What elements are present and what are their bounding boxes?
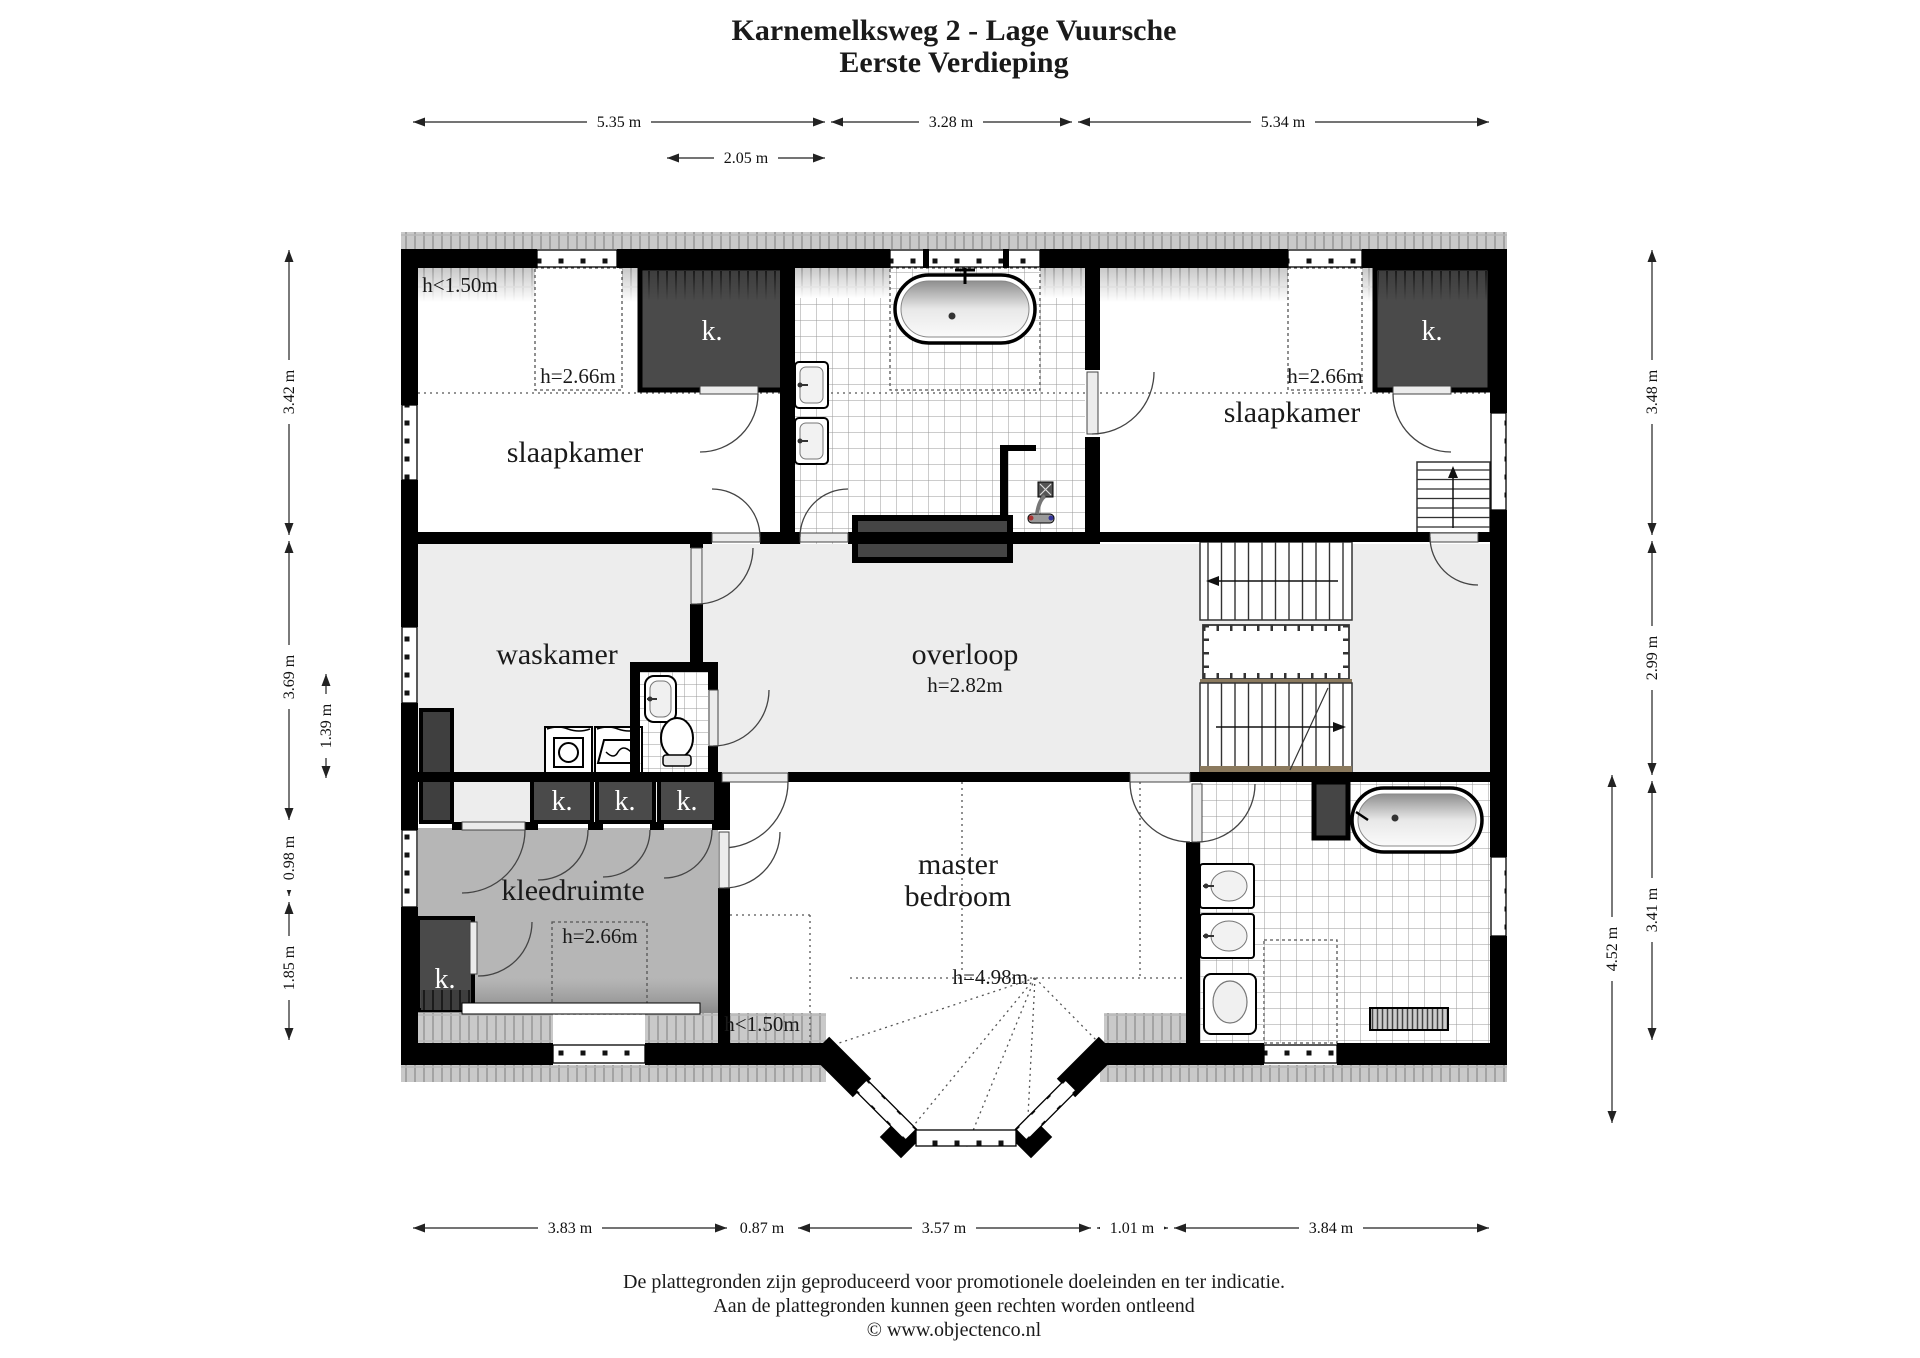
label-waskamer: waskamer (496, 638, 618, 671)
floor-plan-page: slaapkamer slaapkamer waskamer overloop … (0, 0, 1920, 1358)
label-master: master (918, 848, 998, 881)
door-leaf (1430, 533, 1478, 542)
svg-text:2.05 m: 2.05 m (724, 150, 769, 167)
label-closet: k. (615, 786, 636, 817)
label-closet: k. (1422, 316, 1443, 347)
room-overloop (703, 544, 1490, 772)
window (1264, 1045, 1337, 1063)
svg-text:1.39 m: 1.39 m (318, 703, 335, 748)
label-dormer-kleedruimte: h=2.66m (562, 924, 637, 948)
label-overloop: overloop (912, 638, 1019, 671)
dim-bottom-3: 3.57 m (798, 1219, 1091, 1237)
label-master-height: h=4.98m (953, 965, 1028, 989)
storage-block-waskamer (421, 710, 452, 822)
window-band-kleedruimte (462, 1003, 700, 1014)
toilet-sink-icon (645, 676, 676, 722)
dim-right-1: 3.48 m (1643, 250, 1661, 535)
roof-band-bottom-right (1100, 1065, 1507, 1082)
dim-top-inner: 2.05 m (667, 149, 825, 167)
dormer-gap-bottom (553, 1013, 645, 1043)
svg-text:2.99 m: 2.99 m (1644, 635, 1661, 680)
bathtub-icon (895, 268, 1035, 343)
label-closet: k. (677, 786, 698, 817)
window (1491, 413, 1506, 510)
svg-text:3.57 m: 3.57 m (922, 1220, 967, 1237)
label-slaapkamer-left: slaapkamer (507, 436, 644, 469)
roof-band-top (401, 232, 1507, 249)
dim-right-inner: 4.52 m (1603, 775, 1621, 1123)
door-leaf (719, 832, 729, 888)
stair-nosing (1200, 766, 1352, 772)
window (402, 405, 417, 480)
footer-disclaimer-line2: Aan de plattegronden kunnen geen rechten… (713, 1295, 1194, 1317)
svg-text:3.41 m: 3.41 m (1644, 887, 1661, 932)
floor-plan: slaapkamer slaapkamer waskamer overloop … (0, 0, 1920, 1358)
door-leaf (1192, 784, 1202, 842)
svg-text:3.84 m: 3.84 m (1309, 1220, 1354, 1237)
door-leaf (1393, 386, 1451, 394)
staircase-attic (1417, 462, 1490, 533)
svg-text:5.34 m: 5.34 m (1261, 114, 1306, 131)
label-closet: k. (552, 786, 573, 817)
ensuite-wc-icon (1204, 974, 1256, 1034)
footer-copyright: © www.objectenco.nl (867, 1319, 1042, 1341)
label-closet: k. (435, 964, 456, 995)
ensuite-sink-icon (1200, 914, 1254, 958)
svg-text:3.42 m: 3.42 m (281, 369, 298, 414)
svg-text:0.87 m: 0.87 m (740, 1220, 785, 1237)
window (553, 1045, 645, 1063)
door-leaf (800, 533, 848, 542)
dim-bottom-4: 1.01 m (1097, 1219, 1168, 1237)
label-dormer-left: h=2.66m (540, 364, 615, 388)
door-leaf (1130, 773, 1190, 782)
svg-text:1.01 m: 1.01 m (1110, 1220, 1155, 1237)
page-title-line1: Karnemelksweg 2 - Lage Vuursche (732, 14, 1177, 47)
bay-window (916, 1130, 1016, 1146)
wc-icon (661, 718, 693, 766)
window (537, 250, 617, 267)
svg-text:3.69 m: 3.69 m (281, 654, 298, 699)
svg-text:3.83 m: 3.83 m (548, 1220, 593, 1237)
svg-text:4.52 m: 4.52 m (1604, 926, 1621, 971)
door-leaf (691, 548, 702, 604)
label-slaapkamer-right: slaapkamer (1224, 396, 1361, 429)
sink-icon (795, 418, 828, 464)
stair-void-railing (1203, 625, 1349, 679)
svg-text:5.35 m: 5.35 m (597, 114, 642, 131)
page-title-line2: Eerste Verdieping (839, 46, 1068, 79)
dim-left-inner: 1.39 m (317, 674, 335, 778)
dim-left-4: 1.85 m (280, 902, 298, 1040)
svg-text:3.28 m: 3.28 m (929, 114, 974, 131)
dim-top-1: 5.35 m (413, 113, 825, 131)
label-dormer-right: h=2.66m (1287, 364, 1362, 388)
door-leaf (470, 922, 477, 974)
dim-top-3: 5.34 m (1078, 113, 1489, 131)
door-leaf (1087, 372, 1098, 434)
dim-left-2: 3.69 m (280, 541, 298, 820)
window (890, 250, 1040, 267)
door-leaf (722, 773, 788, 782)
door-leaf (709, 690, 718, 746)
svg-text:3.48 m: 3.48 m (1644, 369, 1661, 414)
dim-top-2: 3.28 m (831, 113, 1072, 131)
door-leaf (700, 386, 758, 394)
window (402, 627, 417, 703)
door-leaf (712, 533, 760, 542)
label-closet: k. (702, 316, 723, 347)
dim-bottom-1: 3.83 m (413, 1219, 727, 1237)
staircase-main (1200, 542, 1352, 772)
dim-right-2: 2.99 m (1643, 541, 1661, 775)
dim-left-1: 3.42 m (280, 250, 298, 535)
dim-right-3: 3.41 m (1643, 781, 1661, 1040)
door-leaf (462, 822, 525, 830)
ensuite-bathtub-icon (1352, 788, 1482, 852)
washing-machine-icon (545, 727, 592, 775)
dim-bottom-5: 3.84 m (1174, 1219, 1489, 1237)
sink-icon (795, 362, 828, 408)
window (1288, 250, 1362, 267)
ensuite-sink-icon (1200, 864, 1254, 908)
radiator-icon (1370, 1008, 1448, 1030)
dim-bottom-2: 0.87 m (730, 1219, 794, 1237)
svg-text:1.85 m: 1.85 m (281, 945, 298, 990)
roof-band-bottom-left (401, 1065, 826, 1082)
window (1491, 857, 1506, 936)
footer-disclaimer-line1: De plattegronden zijn geproduceerd voor … (623, 1271, 1285, 1293)
label-low-height-bottom: h<1.50m (724, 1012, 799, 1036)
niche-block (1314, 782, 1348, 838)
label-overloop-height: h=2.82m (927, 673, 1002, 697)
window (402, 830, 417, 907)
roof-band-inner-bottom-right (1104, 1013, 1186, 1043)
dim-left-3: 0.98 m (280, 826, 298, 896)
label-low-height-top: h<1.50m (422, 273, 497, 297)
label-bedroom: bedroom (905, 880, 1012, 913)
label-kleedruimte: kleedruimte (501, 874, 644, 907)
svg-text:0.98 m: 0.98 m (281, 835, 298, 880)
